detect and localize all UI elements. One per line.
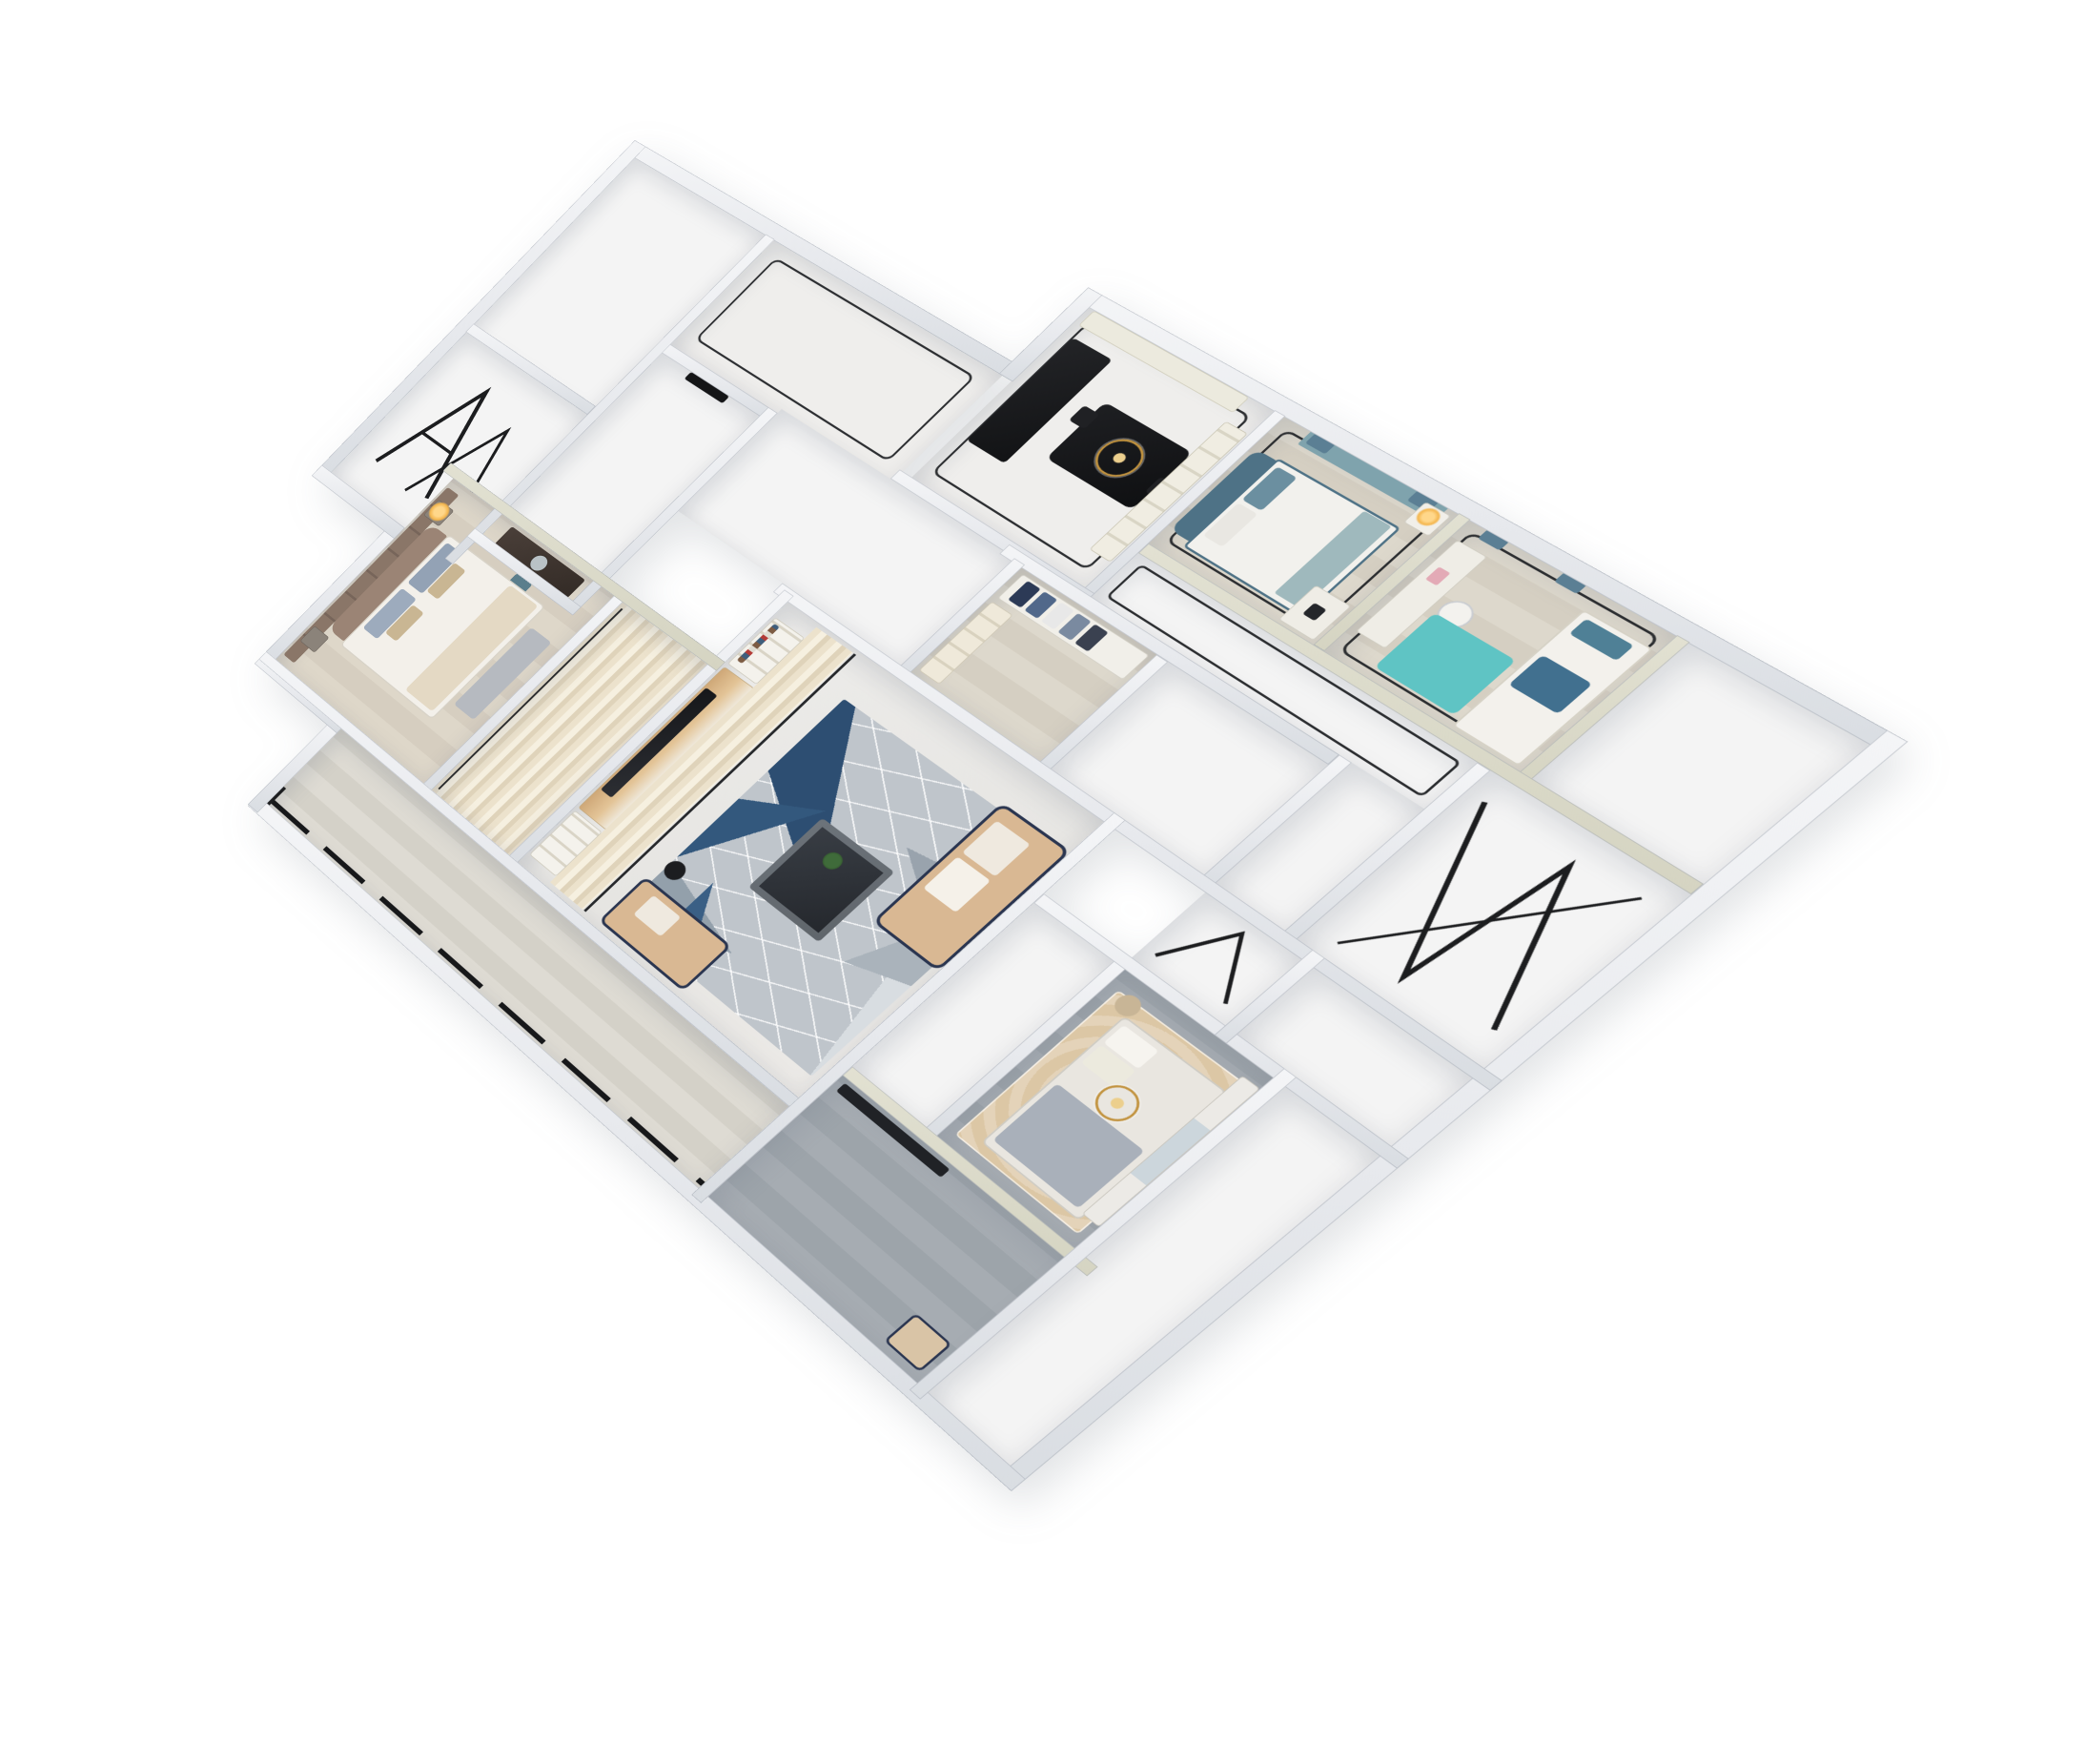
render-canvas — [0, 0, 2085, 1764]
apartment-floor-plan — [243, 172, 1897, 1483]
plan-shadow-wrap — [0, 0, 2085, 1764]
